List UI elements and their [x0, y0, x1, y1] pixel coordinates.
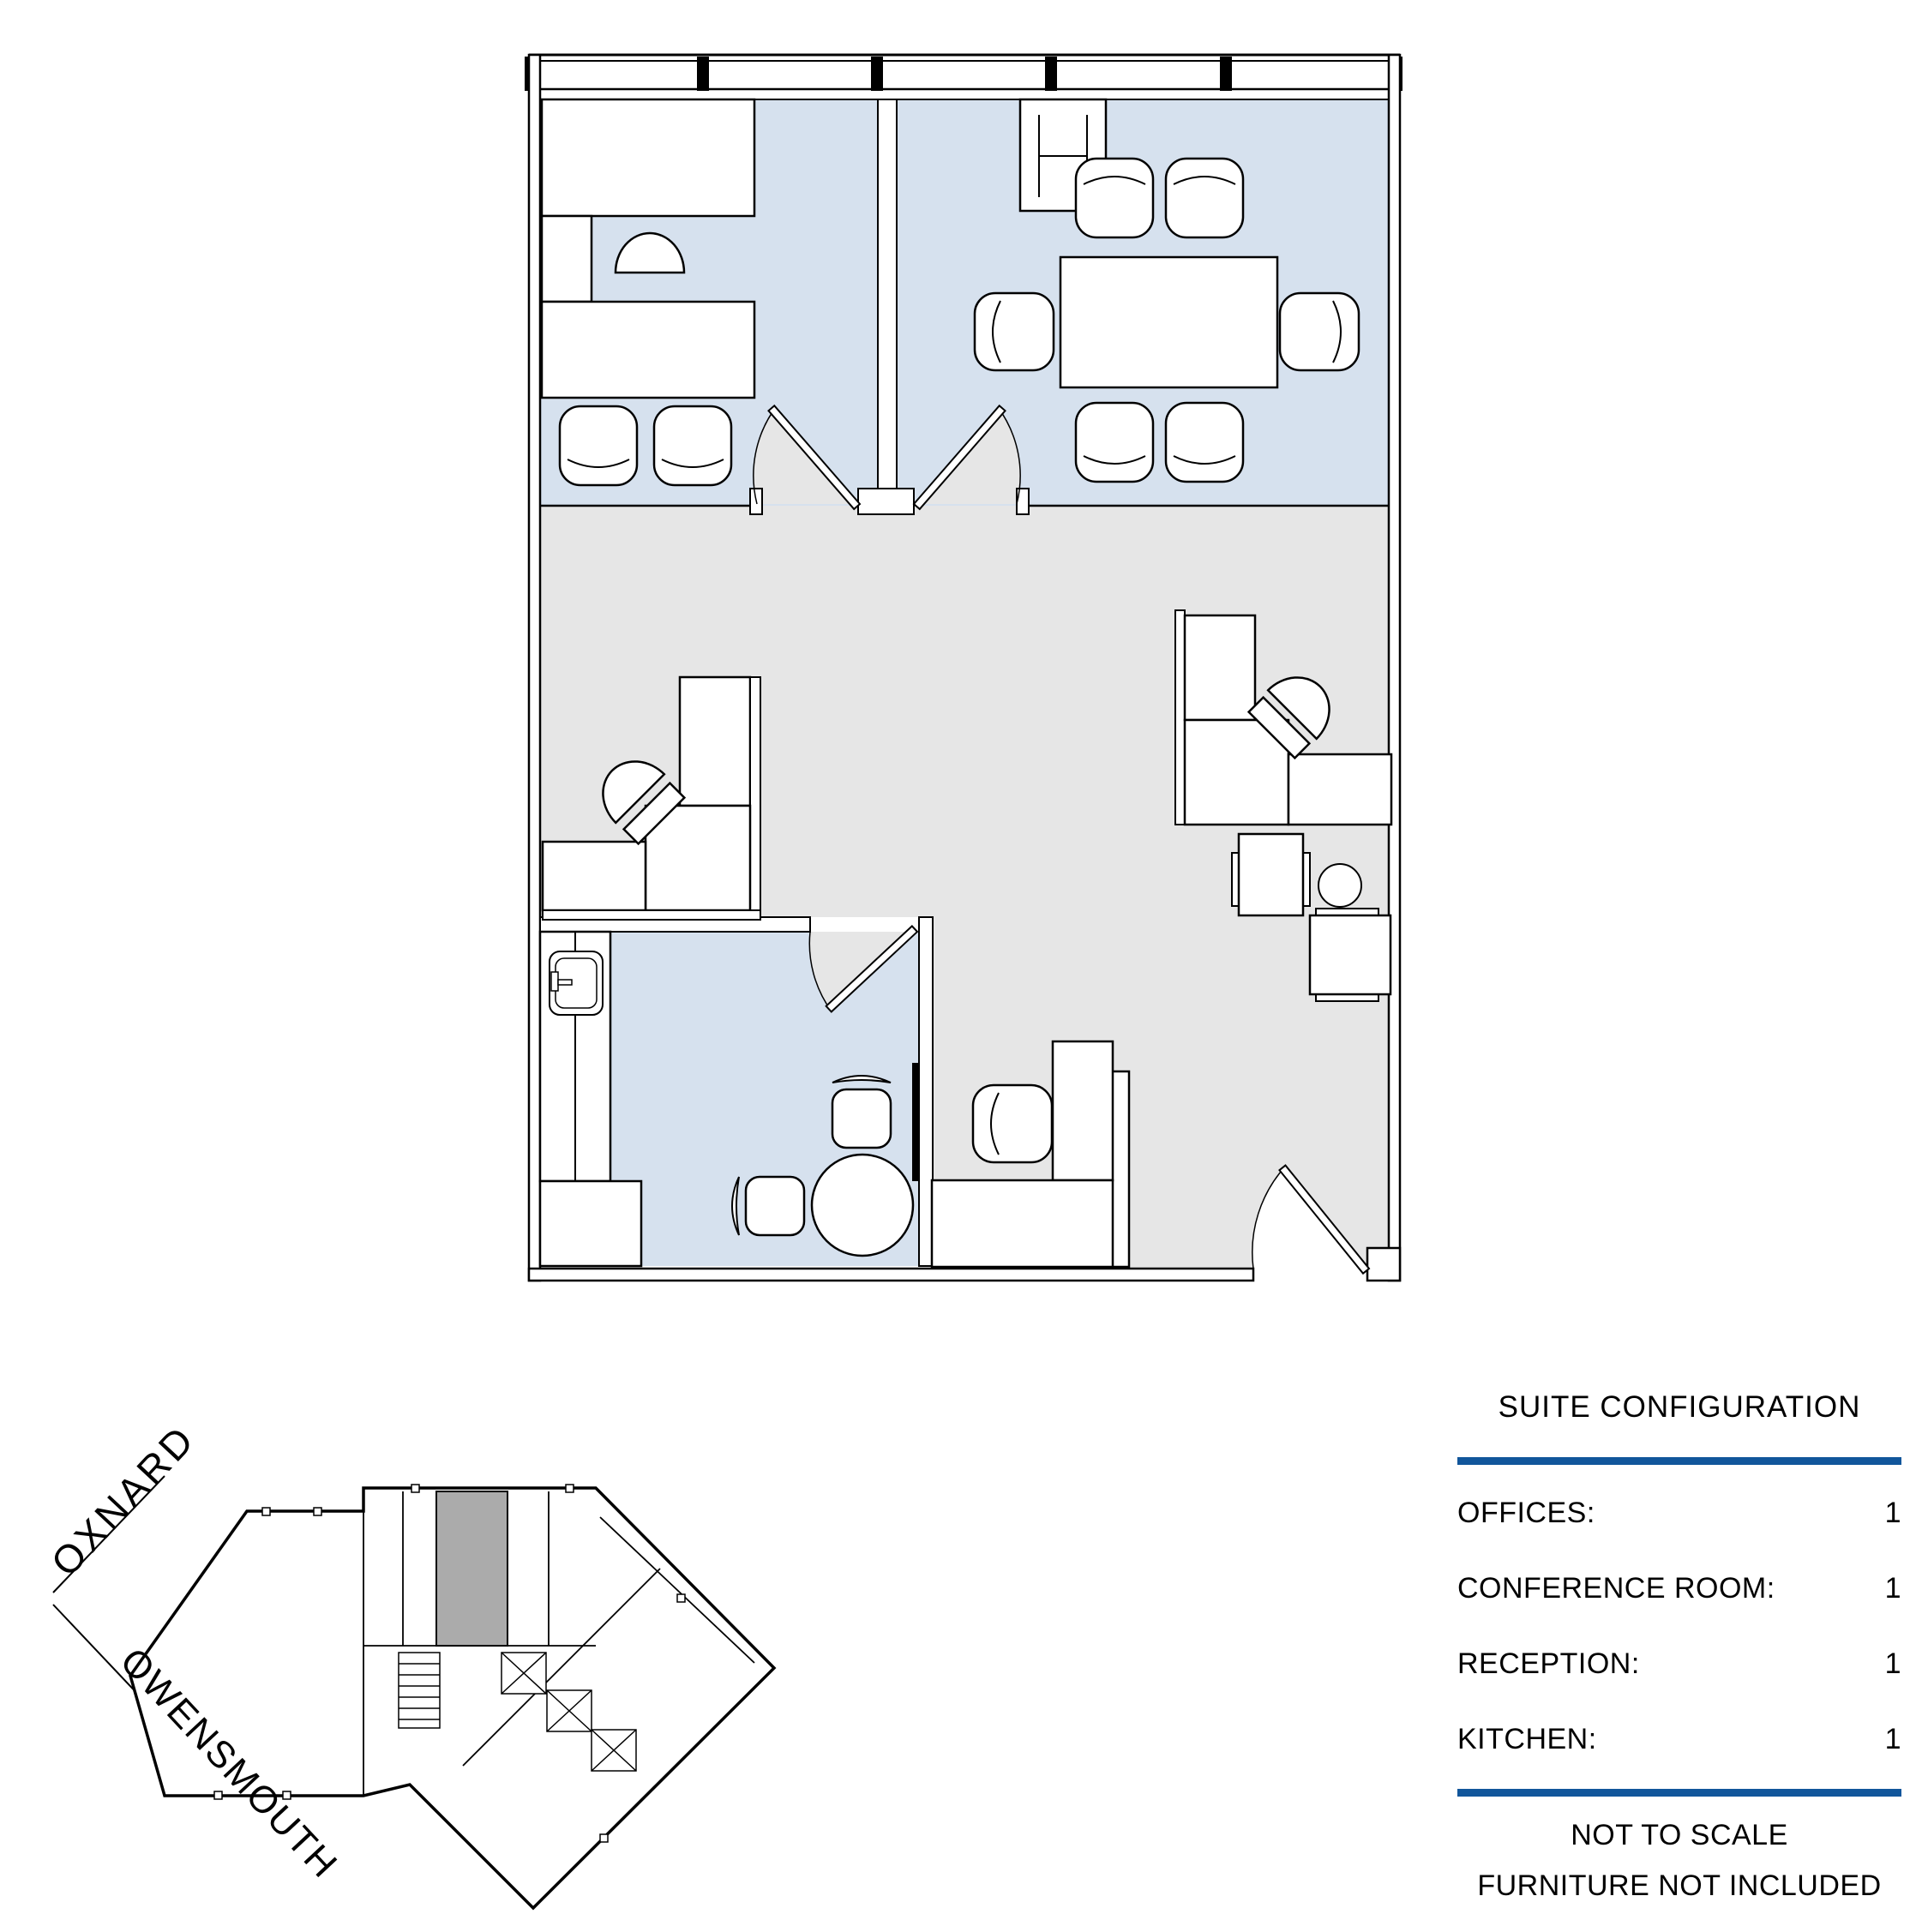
kitchen-refrigerator [540, 1181, 641, 1266]
divider-rule-bottom [1457, 1789, 1901, 1797]
center-wall-block [858, 489, 914, 514]
office-desk [542, 302, 754, 398]
floor-plan-sheet: OXNARD OWENSMOUTH SUITE CONFIGURATION OF… [0, 0, 1922, 1932]
conference-chair [1076, 159, 1153, 237]
workstation-side-panel [750, 677, 760, 920]
row-label: KITCHEN: [1457, 1723, 1597, 1756]
row-label: CONFERENCE ROOM: [1457, 1572, 1775, 1605]
divider-rule-top [1457, 1457, 1901, 1465]
office-guest-chair [560, 406, 637, 485]
key-plan-stair [399, 1653, 440, 1728]
row-value: 1 [1885, 1723, 1901, 1756]
conference-table [1060, 257, 1277, 387]
reception-desk-counter [1053, 1041, 1113, 1180]
kitchen-right-wall [919, 917, 933, 1266]
printer-stand [1239, 834, 1303, 915]
conference-chair [1280, 293, 1359, 370]
divider-wall [878, 99, 897, 490]
conference-chair [1166, 159, 1243, 237]
row-value: 1 [1885, 1497, 1901, 1530]
note-furniture: FURNITURE NOT INCLUDED [1457, 1869, 1901, 1903]
kitchen-round-table [812, 1155, 913, 1256]
workstation-return [1288, 754, 1391, 825]
sink-faucet-spout [558, 980, 572, 985]
workstation-desk [680, 677, 750, 806]
row-value: 1 [1885, 1572, 1901, 1605]
conference-chair [1076, 403, 1153, 482]
suite-highlight [436, 1491, 508, 1646]
key-plan: OXNARD OWENSMOUTH [42, 1416, 774, 1908]
config-row-conference: CONFERENCE ROOM: 1 [1457, 1551, 1901, 1626]
reception-desk [932, 1180, 1113, 1267]
workstation-side-panel [1175, 610, 1185, 825]
workstation-return [543, 842, 646, 910]
config-rows: OFFICES: 1 CONFERENCE ROOM: 1 RECEPTION:… [1457, 1475, 1901, 1777]
reception-chair [973, 1085, 1052, 1162]
street-label-oxnard: OXNARD [42, 1416, 204, 1585]
side-table [1310, 915, 1390, 994]
round-stool [1318, 864, 1361, 907]
row-value: 1 [1885, 1647, 1901, 1681]
office-side-shelf [542, 216, 592, 302]
row-label: OFFICES: [1457, 1497, 1595, 1530]
row-label: RECEPTION: [1457, 1647, 1640, 1681]
right-wall [1389, 55, 1400, 1281]
config-row-reception: RECEPTION: 1 [1457, 1626, 1901, 1701]
config-row-kitchen: KITCHEN: 1 [1457, 1701, 1901, 1777]
workstation-panel [543, 910, 760, 920]
wall-board [912, 1063, 918, 1181]
suite-configuration-panel: SUITE CONFIGURATION OFFICES: 1 CONFERENC… [1457, 1390, 1901, 1903]
workstation-desk [1185, 615, 1255, 720]
office-credenza [542, 99, 754, 216]
conference-chair [1166, 403, 1243, 482]
sink-faucet [551, 972, 558, 991]
config-row-offices: OFFICES: 1 [1457, 1475, 1901, 1551]
left-wall [529, 55, 540, 1281]
panel-title: SUITE CONFIGURATION [1457, 1390, 1901, 1425]
office-guest-chair [654, 406, 731, 485]
note-not-to-scale: NOT TO SCALE [1457, 1819, 1901, 1852]
bottom-wall-left-segment [529, 1269, 1253, 1281]
bottom-wall-right-segment [1367, 1248, 1400, 1281]
conference-chair [975, 293, 1054, 370]
